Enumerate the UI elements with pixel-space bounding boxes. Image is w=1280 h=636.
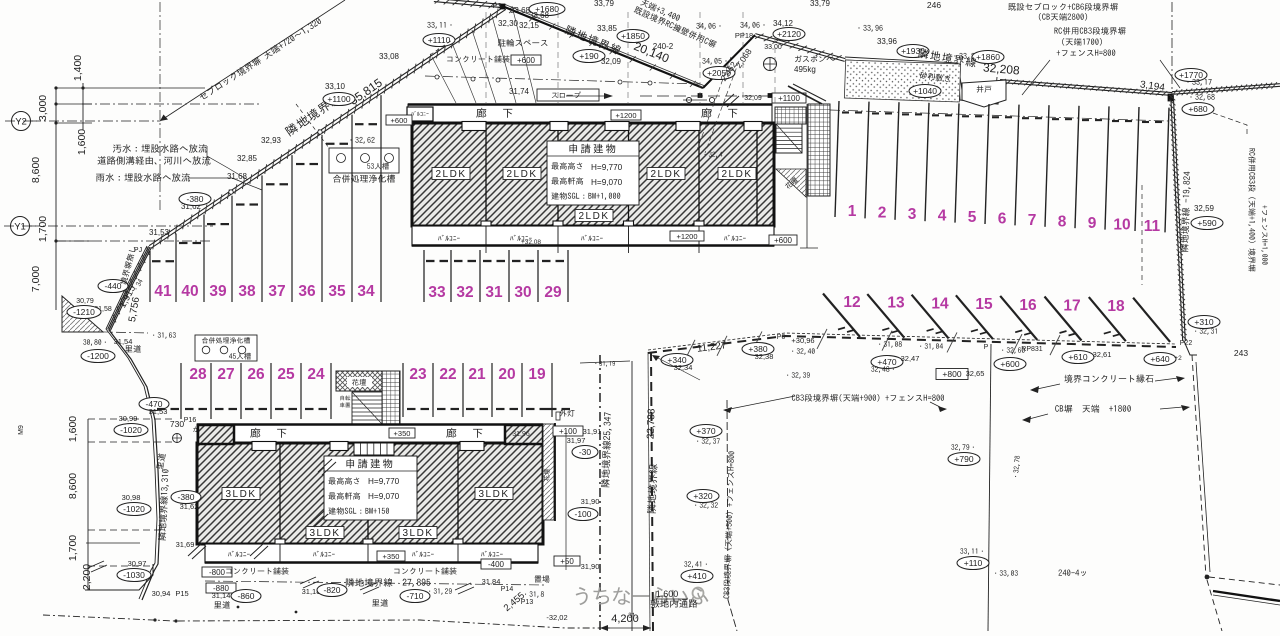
svg-text:32,65: 32,65: [966, 369, 985, 378]
svg-text:M9: M9: [18, 425, 25, 435]
svg-text:P6: P6: [777, 334, 786, 341]
svg-text:31: 31: [485, 284, 503, 301]
svg-text:31,90: 31,90: [581, 497, 600, 506]
svg-text:P15: P15: [175, 589, 188, 598]
svg-text:+640: +640: [1150, 354, 1169, 364]
svg-text:17: 17: [1063, 298, 1080, 315]
svg-text:1,600: 1,600: [76, 129, 88, 155]
svg-text:31,53: 31,53: [149, 228, 170, 237]
svg-text:31,69: 31,69: [176, 540, 195, 549]
svg-text:-380: -380: [177, 492, 194, 502]
svg-text:+350: +350: [383, 552, 400, 561]
svg-text:32,93: 32,93: [261, 136, 282, 145]
svg-text:Y1: Y1: [14, 222, 26, 233]
svg-text:3LDK: 3LDK: [225, 489, 256, 500]
svg-text:31,68: 31,68: [227, 172, 248, 181]
svg-text:32,85: 32,85: [237, 154, 258, 163]
svg-text:12: 12: [843, 294, 860, 311]
svg-text:+1200: +1200: [676, 232, 697, 241]
svg-text:41: 41: [154, 283, 172, 300]
svg-text:+320: +320: [693, 491, 712, 501]
svg-text:8,600: 8,600: [30, 157, 42, 183]
svg-text:+610: +610: [1068, 352, 1087, 362]
svg-text:33,79: 33,79: [810, 0, 831, 8]
svg-text:31,90: 31,90: [581, 562, 600, 571]
svg-text:7,000: 7,000: [30, 266, 42, 292]
svg-text:20: 20: [498, 366, 515, 383]
svg-text:+350: +350: [394, 429, 411, 438]
svg-text:8: 8: [1058, 214, 1067, 231]
svg-text:27: 27: [217, 366, 234, 383]
svg-text:-1200: -1200: [87, 351, 109, 361]
svg-text:+680: +680: [1188, 104, 1207, 114]
svg-text:2LDK: 2LDK: [650, 169, 681, 180]
svg-text:35: 35: [328, 283, 346, 300]
svg-text:30,94: 30,94: [152, 589, 171, 598]
svg-text:2LDK: 2LDK: [578, 211, 609, 222]
svg-text:1,600: 1,600: [67, 416, 79, 442]
svg-text:24: 24: [307, 366, 325, 383]
svg-text:+410: +410: [687, 571, 706, 581]
svg-text:2LDK: 2LDK: [721, 169, 752, 180]
svg-text:-380: -380: [186, 194, 203, 204]
svg-text:+370: +370: [696, 426, 715, 436]
svg-text:9: 9: [1088, 215, 1097, 232]
svg-text:30,97: 30,97: [128, 559, 147, 568]
svg-text:31,62: 31,62: [180, 502, 199, 511]
svg-text:40: 40: [181, 283, 198, 300]
svg-text:246: 246: [927, 0, 941, 10]
svg-text:+190: +190: [579, 51, 598, 61]
svg-text:-100: -100: [574, 509, 591, 519]
svg-text:+1110: +1110: [428, 35, 451, 45]
svg-text:1,400: 1,400: [72, 55, 84, 81]
svg-text:16: 16: [1019, 297, 1037, 314]
svg-text:+800: +800: [942, 369, 961, 379]
svg-text:+790: +790: [954, 454, 973, 464]
svg-text:31,97: 31,97: [567, 436, 586, 445]
svg-text:33,68: 33,68: [529, 11, 550, 20]
svg-text:+590: +590: [1197, 218, 1216, 228]
svg-text:4: 4: [938, 208, 947, 225]
svg-text:-800: -800: [209, 568, 226, 577]
svg-text:32,61: 32,61: [1093, 350, 1112, 359]
svg-text:+50: +50: [560, 557, 574, 566]
svg-text:32,59: 32,59: [1194, 204, 1215, 213]
svg-text:-440: -440: [104, 281, 121, 291]
svg-text:+2: +2: [1174, 355, 1182, 362]
svg-text:34: 34: [357, 283, 375, 300]
svg-text:22: 22: [439, 366, 456, 383]
svg-text:2LDK: 2LDK: [506, 169, 537, 180]
svg-text:+470: +470: [877, 357, 896, 367]
svg-text:+600: +600: [391, 116, 408, 125]
svg-text:31,14: 31,14: [212, 591, 231, 600]
svg-text:+310: +310: [1194, 317, 1213, 327]
svg-text:23: 23: [409, 366, 427, 383]
svg-text:33,10: 33,10: [325, 82, 346, 91]
svg-text:33,08: 33,08: [379, 52, 400, 61]
svg-text:31,91: 31,91: [583, 427, 602, 436]
svg-text:33,96: 33,96: [877, 37, 898, 46]
svg-text:25: 25: [277, 366, 295, 383]
svg-text:3LDK: 3LDK: [478, 489, 509, 500]
svg-text:18: 18: [1107, 298, 1125, 315]
svg-text:8,600: 8,600: [67, 473, 79, 499]
svg-text:P22: P22: [1180, 340, 1193, 347]
svg-text:30,98: 30,98: [122, 493, 141, 502]
svg-text:30: 30: [514, 284, 531, 301]
svg-text:32,15: 32,15: [519, 21, 540, 30]
svg-text:2: 2: [878, 205, 887, 222]
svg-text:+30,96: +30,96: [791, 336, 814, 345]
svg-text:PP18: PP18: [735, 31, 753, 40]
svg-text:3LDK: 3LDK: [309, 528, 340, 539]
svg-text:P: P: [984, 344, 989, 351]
svg-text:21: 21: [468, 366, 486, 383]
svg-text:2LDK: 2LDK: [435, 169, 466, 180]
svg-text:+1100: +1100: [778, 94, 800, 103]
svg-text:-32,02: -32,02: [546, 613, 567, 622]
svg-text:33,85: 33,85: [597, 24, 618, 33]
svg-text:5: 5: [968, 209, 977, 226]
svg-text:RP831: RP831: [1021, 346, 1043, 353]
svg-text:+100: +100: [559, 427, 578, 436]
svg-text:33: 33: [428, 284, 446, 301]
svg-text:-1030: -1030: [123, 570, 145, 580]
svg-text:19: 19: [528, 366, 546, 383]
svg-text:32,09: 32,09: [601, 57, 622, 66]
svg-text:31,54: 31,54: [114, 337, 133, 346]
svg-text:-860: -860: [237, 591, 254, 601]
svg-text:33,00: 33,00: [764, 44, 782, 51]
svg-text:730: 730: [170, 419, 184, 429]
svg-text:+600: +600: [774, 236, 793, 245]
svg-text:243: 243: [1234, 348, 1248, 358]
svg-text:32,47: 32,47: [901, 354, 920, 363]
svg-text:+600: +600: [1000, 359, 1019, 369]
svg-text:H=9,770: H=9,770: [368, 477, 400, 486]
svg-text:+1200: +1200: [615, 111, 636, 120]
svg-text:-710: -710: [406, 591, 423, 601]
svg-text:PJ: PJ: [134, 247, 142, 254]
svg-text:-400: -400: [488, 560, 505, 569]
svg-text:30,99: 30,99: [119, 414, 138, 423]
svg-text:29: 29: [544, 284, 562, 301]
svg-text:33,79: 33,79: [594, 0, 615, 8]
svg-text:H=9,070: H=9,070: [591, 178, 623, 187]
svg-text:-30: -30: [579, 447, 592, 457]
svg-text:6: 6: [998, 211, 1007, 228]
svg-text:38: 38: [238, 283, 256, 300]
svg-text:+1040: +1040: [913, 86, 937, 96]
svg-text:13: 13: [887, 295, 905, 312]
svg-text:3: 3: [908, 206, 917, 223]
svg-text:+2120: +2120: [777, 29, 801, 39]
svg-text:+1850: +1850: [621, 31, 645, 41]
svg-text:+1770: +1770: [1179, 70, 1203, 80]
svg-text:4,200: 4,200: [611, 613, 639, 625]
svg-text:11: 11: [1144, 218, 1161, 235]
svg-text:1,700: 1,700: [37, 216, 49, 242]
svg-text:34,12: 34,12: [773, 19, 794, 28]
svg-text:H=9,770: H=9,770: [591, 163, 623, 172]
svg-text:+110: +110: [964, 558, 983, 568]
svg-text:3LDK: 3LDK: [402, 528, 433, 539]
svg-text:1,600: 1,600: [656, 589, 679, 599]
svg-text:P3: P3: [492, 1, 501, 10]
svg-text:31,96: 31,96: [512, 431, 530, 438]
svg-text:+32,08: +32,08: [521, 239, 541, 246]
svg-text:32,38: 32,38: [755, 352, 774, 361]
svg-text:28: 28: [189, 366, 207, 383]
svg-text:-1210: -1210: [73, 307, 95, 317]
svg-text:-1020: -1020: [120, 425, 142, 435]
svg-text:32: 32: [456, 284, 473, 301]
svg-text:Y2: Y2: [15, 117, 27, 128]
svg-text:+1100: +1100: [327, 94, 351, 104]
svg-text:22,788: 22,788: [645, 408, 657, 439]
svg-text:26: 26: [247, 366, 265, 383]
svg-text:P14: P14: [501, 586, 514, 593]
svg-text:2,200: 2,200: [81, 564, 93, 590]
svg-text:495kg: 495kg: [794, 65, 816, 74]
svg-text:7: 7: [1028, 212, 1037, 229]
svg-text:39: 39: [209, 283, 227, 300]
svg-text:3,000: 3,000: [37, 95, 49, 121]
svg-text:H=9,070: H=9,070: [368, 492, 400, 501]
svg-text:14: 14: [931, 295, 949, 312]
svg-text:-1020: -1020: [123, 504, 145, 514]
svg-text:36: 36: [298, 283, 316, 300]
svg-text:P16: P16: [184, 417, 197, 424]
svg-text:-820: -820: [323, 585, 340, 595]
svg-text:1: 1: [848, 203, 857, 220]
svg-text:240-2: 240-2: [653, 42, 674, 51]
svg-text:10: 10: [1113, 217, 1130, 234]
svg-text:37: 37: [268, 283, 285, 300]
svg-text:1,700: 1,700: [67, 535, 79, 561]
svg-text:15: 15: [975, 296, 993, 313]
svg-text:30,79: 30,79: [76, 298, 94, 305]
